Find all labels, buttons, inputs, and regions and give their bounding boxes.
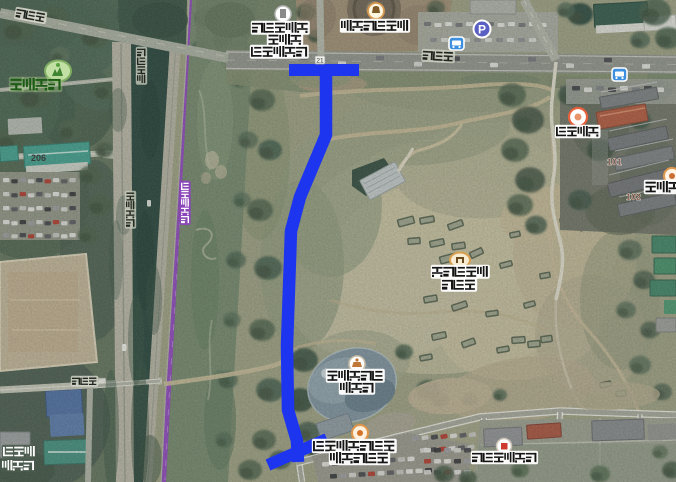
svg-text:P: P — [478, 23, 486, 37]
svg-text:101: 101 — [607, 157, 622, 167]
svg-text:21: 21 — [316, 58, 324, 65]
svg-text:102: 102 — [626, 192, 641, 202]
